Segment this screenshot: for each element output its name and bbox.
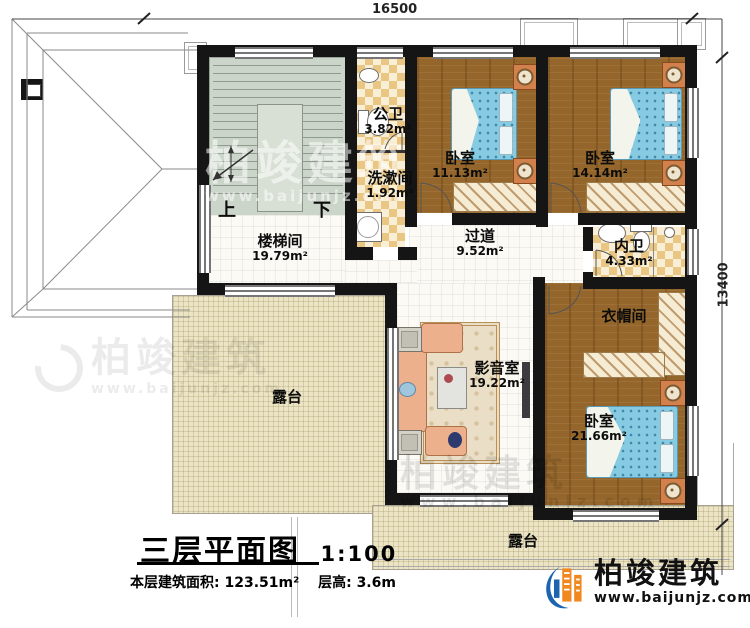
wall-corridor-top-b bbox=[578, 213, 697, 225]
nightstand bbox=[662, 62, 686, 88]
nightstand bbox=[660, 380, 686, 406]
terrace-right-railing-strip bbox=[697, 443, 734, 505]
room-label-public-bath: 公卫 3.82m² bbox=[364, 106, 411, 137]
room-label-washroom: 洗漱间 1.92m² bbox=[366, 170, 413, 201]
wall-cloak-left bbox=[533, 277, 545, 520]
lamp-icon bbox=[665, 483, 682, 500]
armchair-bottom bbox=[397, 430, 422, 455]
wall-washroom-corridor-b bbox=[398, 247, 417, 260]
floor-plan-canvas: 16500 13400 楼梯间 19.79m² 公卫 3.82m² 洗漱间 1.… bbox=[0, 0, 750, 628]
bed-pillow bbox=[660, 444, 674, 473]
nightstand bbox=[660, 478, 686, 504]
window-terrace-wall bbox=[225, 285, 335, 297]
room-label-terrace-left: 露台 bbox=[272, 389, 302, 406]
room-label-bedroom2: 卧室 14.14m² bbox=[572, 150, 628, 181]
coffee-table bbox=[437, 367, 467, 409]
lamp-icon bbox=[666, 67, 683, 84]
person-figure bbox=[448, 432, 462, 448]
bed-sheet bbox=[611, 89, 640, 159]
lamp-icon bbox=[666, 165, 683, 182]
title-underline bbox=[137, 562, 319, 565]
wardrobe-bedroom2 bbox=[586, 182, 687, 212]
room-label-ensuite: 内卫 4.33m² bbox=[605, 238, 652, 269]
room-label-corridor: 过道 9.52m² bbox=[456, 228, 503, 259]
bed-pillow bbox=[660, 411, 674, 440]
window-top-bedroom1 bbox=[433, 47, 513, 59]
window-top-bath bbox=[357, 47, 403, 59]
wardrobe-cloakroom-bottom bbox=[583, 352, 665, 378]
room-label-bedroom1: 卧室 11.13m² bbox=[432, 150, 488, 181]
wall-washroom-corridor-a bbox=[345, 247, 373, 260]
plan-subtitle: 本层建筑面积: 123.51m² 层高: 3.6m bbox=[130, 572, 396, 592]
window-right-ensuite bbox=[687, 229, 699, 275]
table-decor bbox=[444, 374, 453, 383]
floor-height-text: 层高: 3.6m bbox=[318, 575, 396, 591]
roof-hip-lines bbox=[43, 50, 197, 289]
window-media-bottom bbox=[420, 495, 508, 507]
wall-stair-bath bbox=[345, 45, 357, 260]
bed-pillow bbox=[664, 126, 678, 155]
window-bedroom3-bottom bbox=[573, 510, 659, 522]
sink-icon bbox=[359, 68, 379, 83]
lamp-icon bbox=[665, 385, 682, 402]
nightstand bbox=[662, 160, 686, 186]
window-media-left bbox=[387, 328, 399, 460]
shower-head-icon bbox=[664, 227, 675, 238]
floor-area-text: 本层建筑面积: 123.51m² bbox=[130, 575, 299, 591]
nightstand bbox=[513, 158, 537, 184]
nightstand bbox=[513, 64, 537, 90]
wall-ensuite-left-a bbox=[583, 227, 593, 251]
bed-pillow bbox=[499, 93, 513, 122]
stair-landing bbox=[257, 104, 303, 212]
stair-treads-top bbox=[213, 62, 341, 106]
lamp-icon bbox=[517, 163, 534, 180]
room-label-bedroom3: 卧室 21.66m² bbox=[571, 413, 627, 444]
room-label-stairwell: 楼梯间 19.79m² bbox=[252, 233, 308, 264]
stair-treads-right bbox=[303, 108, 343, 194]
company-logo: 柏竣建筑 www.baijunjz.com bbox=[542, 558, 750, 612]
room-label-media-room: 影音室 19.22m² bbox=[469, 360, 525, 391]
company-website: www.baijunjz.com bbox=[594, 590, 750, 606]
shower-divider bbox=[653, 227, 654, 279]
window-left-stairwell bbox=[199, 185, 211, 273]
armchair-top bbox=[397, 327, 422, 352]
chimney-flue bbox=[27, 84, 41, 97]
wall-corridor-top-a bbox=[452, 213, 548, 225]
sofa-top bbox=[421, 323, 463, 353]
company-logo-icon bbox=[542, 558, 588, 612]
dimension-top-label: 16500 bbox=[372, 2, 417, 17]
watermark-logo-icon bbox=[25, 334, 93, 402]
bed-pillow bbox=[664, 93, 678, 122]
company-name: 柏竣建筑 bbox=[594, 558, 750, 590]
plan-scale: 1:100 bbox=[320, 542, 397, 566]
wall-bedroom1-bedroom2 bbox=[536, 45, 548, 227]
stair-treads-left bbox=[213, 108, 257, 194]
wall-ensuite-bottom bbox=[583, 277, 697, 289]
room-label-cloakroom: 衣帽间 bbox=[601, 308, 646, 325]
roof-outline bbox=[12, 19, 197, 317]
washing-machine-drum bbox=[357, 216, 379, 238]
room-label-terrace-bottom: 露台 bbox=[508, 533, 538, 550]
window-right-bedroom2 bbox=[687, 88, 699, 158]
stair-up-label: 上 bbox=[218, 196, 236, 222]
dimension-right-label: 13400 bbox=[717, 264, 732, 308]
stair-down-label: 下 bbox=[313, 196, 331, 222]
window-right-bedroom3 bbox=[687, 406, 699, 476]
cushion bbox=[399, 382, 416, 397]
wardrobe-bedroom1 bbox=[453, 182, 537, 212]
window-top-stairwell bbox=[235, 47, 313, 59]
wall-bath-washroom-divider bbox=[357, 150, 405, 153]
bed-pillow bbox=[499, 126, 513, 155]
window-top-bedroom2 bbox=[570, 47, 660, 59]
corridor-floor-west bbox=[345, 260, 417, 283]
lamp-icon bbox=[517, 69, 534, 86]
